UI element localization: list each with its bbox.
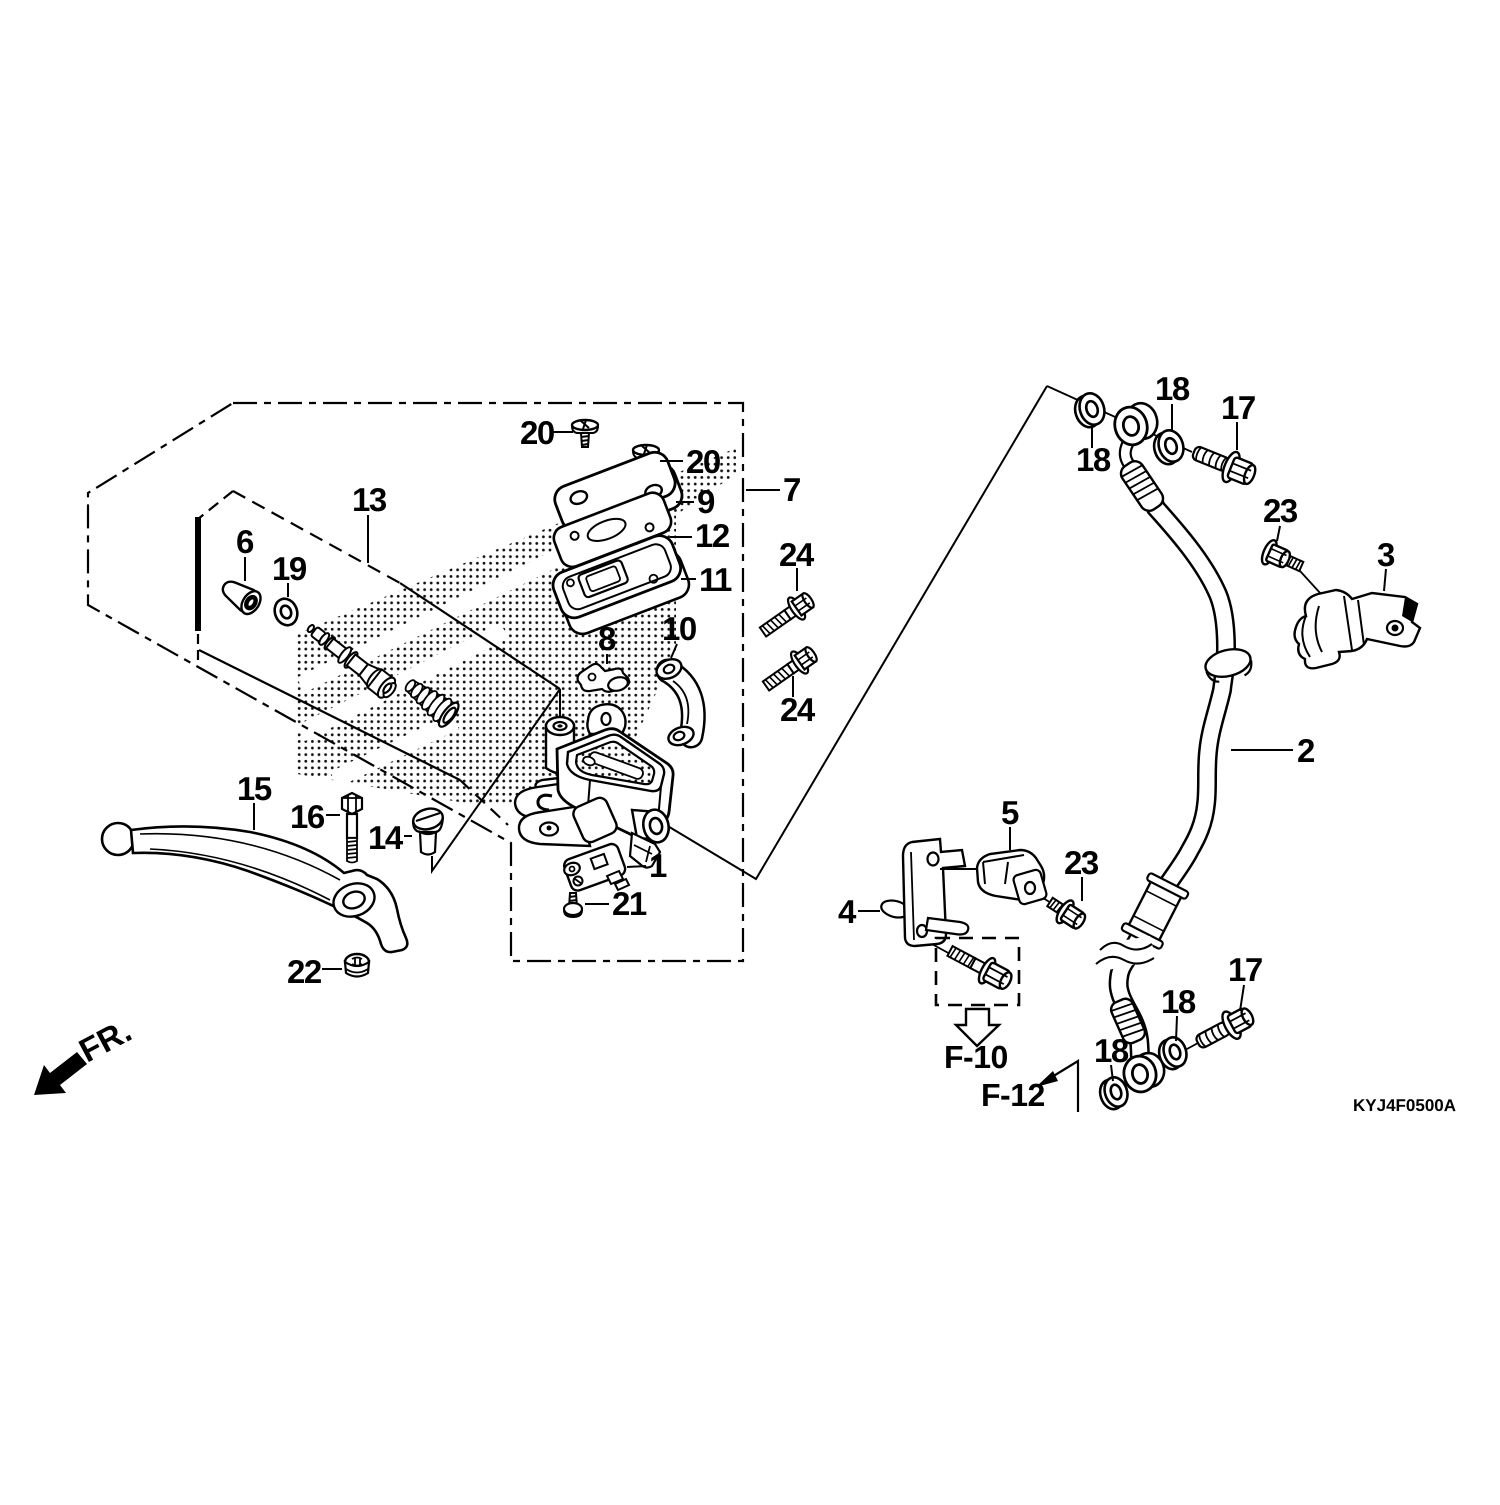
- svg-text:15: 15: [237, 770, 272, 807]
- svg-text:14: 14: [368, 819, 404, 856]
- svg-text:19: 19: [272, 550, 307, 587]
- svg-text:18: 18: [1155, 370, 1190, 407]
- svg-text:F-12: F-12: [981, 1077, 1045, 1113]
- svg-text:F-10: F-10: [944, 1039, 1008, 1075]
- svg-text:2: 2: [1297, 732, 1315, 769]
- svg-text:20: 20: [686, 443, 720, 480]
- svg-text:3: 3: [1377, 536, 1395, 573]
- svg-text:18: 18: [1076, 441, 1111, 478]
- svg-text:24: 24: [780, 691, 816, 728]
- svg-text:18: 18: [1094, 1032, 1129, 1069]
- svg-text:22: 22: [287, 953, 322, 990]
- svg-text:KYJ4F0500A: KYJ4F0500A: [1353, 1096, 1456, 1115]
- svg-text:12: 12: [695, 517, 730, 554]
- svg-text:6: 6: [236, 523, 254, 560]
- svg-text:13: 13: [352, 481, 387, 518]
- svg-text:10: 10: [662, 610, 696, 647]
- svg-text:24: 24: [779, 536, 815, 573]
- svg-text:4: 4: [838, 893, 857, 930]
- svg-text:23: 23: [1064, 844, 1099, 881]
- svg-text:11: 11: [699, 561, 732, 598]
- svg-text:17: 17: [1221, 389, 1255, 426]
- svg-text:8: 8: [598, 620, 616, 657]
- svg-text:17: 17: [1228, 951, 1262, 988]
- svg-text:18: 18: [1161, 983, 1196, 1020]
- svg-text:1: 1: [649, 847, 667, 884]
- svg-text:9: 9: [697, 483, 715, 520]
- svg-text:16: 16: [290, 798, 325, 835]
- svg-text:23: 23: [1263, 492, 1298, 529]
- svg-text:21: 21: [612, 885, 647, 922]
- svg-text:20: 20: [520, 414, 554, 451]
- svg-text:7: 7: [783, 471, 800, 508]
- svg-text:5: 5: [1001, 794, 1019, 831]
